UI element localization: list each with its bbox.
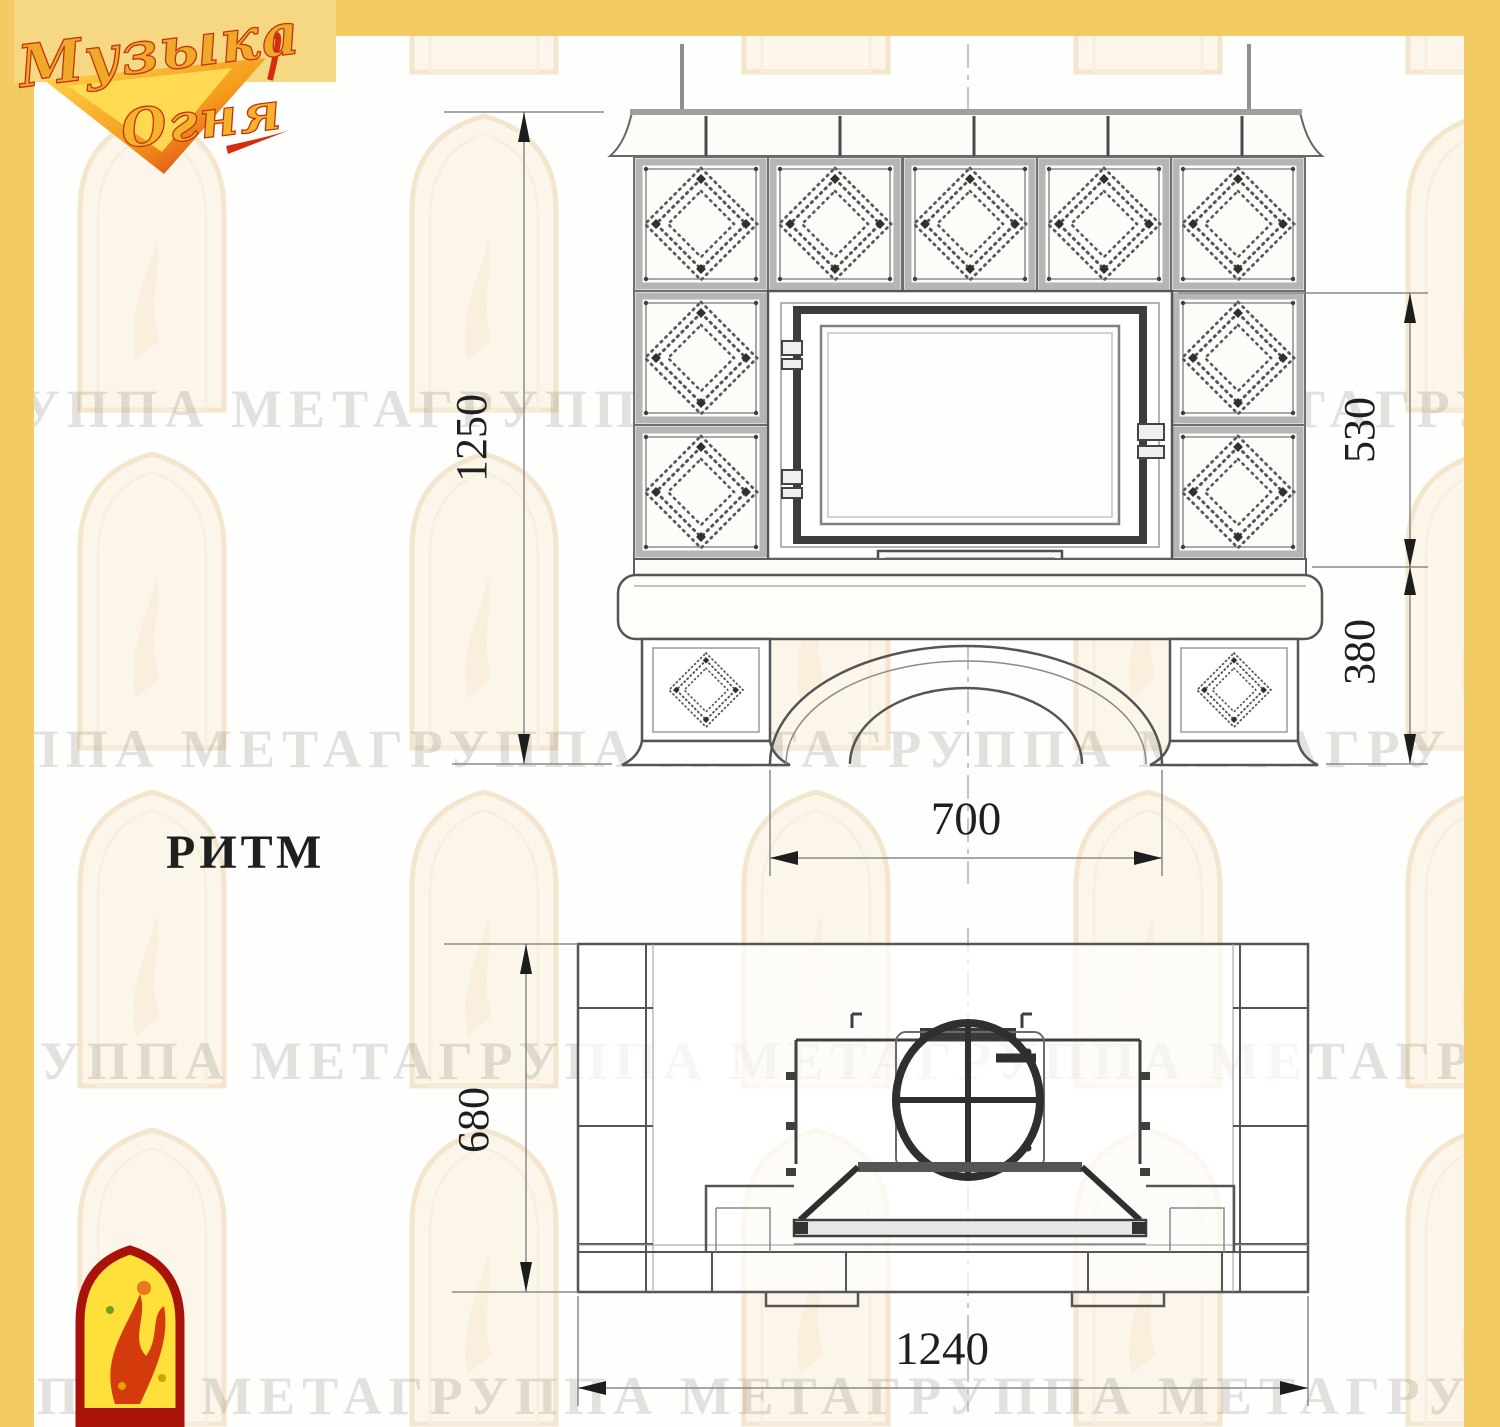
tile-diamond [768, 157, 902, 291]
tile-diamond [634, 157, 768, 291]
tile-foot [766, 1292, 858, 1306]
tile-diamond [1171, 425, 1305, 559]
left-leg [622, 639, 790, 765]
plan-outer-wall [578, 944, 1308, 1292]
dim-label-680: 680 [449, 1087, 498, 1153]
door-handle [1138, 424, 1164, 458]
cornice [610, 112, 1322, 156]
tile-diamond [634, 425, 768, 559]
frame-band-right [1464, 0, 1500, 1427]
tile-diamond [1171, 157, 1305, 291]
dimension-total-height: 1250 [444, 112, 612, 764]
frame-band-left [0, 0, 34, 1427]
dim-label-1250: 1250 [447, 394, 496, 482]
plan-view: 680 1240 [444, 928, 1308, 1412]
blueprint-page: ГРУППА МЕТАГРУППА МЕТАГРУППА МЕТАГРУППА … [0, 0, 1500, 1427]
dim-label-380: 380 [1335, 619, 1384, 685]
door-glass [821, 326, 1119, 524]
dimension-depth: 680 [444, 944, 578, 1292]
tile-foot [1072, 1292, 1164, 1306]
dim-label-1240: 1240 [895, 1323, 989, 1375]
insert-front-fascia [794, 1220, 1146, 1236]
muzyka-ognya-logo: Музыка Огня [14, 0, 344, 190]
tile-diamond [1171, 291, 1305, 425]
firebox [768, 291, 1172, 559]
dim-label-700: 700 [931, 793, 1002, 845]
ledge-band [634, 559, 1306, 575]
dimension-opening-width: 700 [770, 770, 1162, 876]
base-arch [770, 646, 1162, 764]
chimney-lines [682, 44, 1249, 112]
mantel-shelf [618, 575, 1322, 639]
fireplace-drawing: 1250 530 380 700 [0, 0, 1500, 1427]
dim-label-530: 530 [1335, 397, 1384, 463]
hood-back-edge [858, 1162, 1082, 1172]
model-name-label: РИТМ [166, 826, 325, 879]
front-elevation-view: 1250 530 380 700 [444, 44, 1428, 884]
dimension-width: 1240 [578, 1296, 1308, 1406]
firebird-arch-emblem [76, 1250, 184, 1427]
tile-diamond [903, 157, 1037, 291]
right-leg [1150, 639, 1318, 765]
tile-diamond [1037, 157, 1171, 291]
tile-diamond [634, 291, 768, 425]
